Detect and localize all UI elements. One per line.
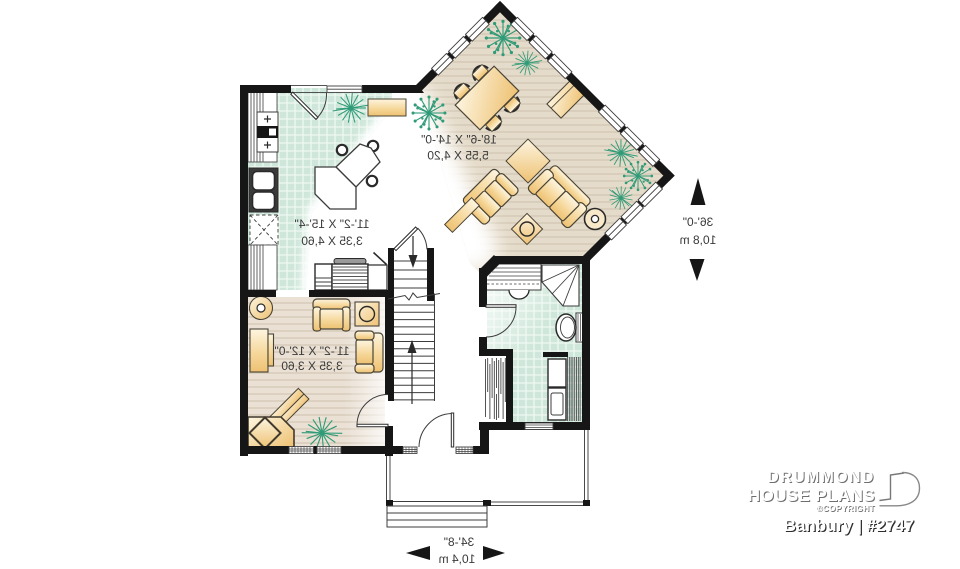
svg-text:11'-2" X 12'-0": 11'-2" X 12'-0" (275, 344, 350, 358)
svg-text:11'-2" X 15'-4": 11'-2" X 15'-4" (295, 217, 370, 231)
svg-text:18'-6" X 14'-0": 18'-6" X 14'-0" (421, 133, 497, 147)
svg-text:3,35 X 4,60: 3,35 X 4,60 (301, 234, 363, 248)
svg-text:10,4 m: 10,4 m (439, 552, 476, 566)
svg-text:34'-8": 34'-8" (444, 535, 475, 549)
svg-text:10,8 m: 10,8 m (680, 233, 717, 247)
svg-text:36'-0": 36'-0" (683, 215, 714, 229)
svg-text:3,35 X 3,60: 3,35 X 3,60 (281, 359, 343, 373)
svg-text:5,55 X 4,20: 5,55 X 4,20 (427, 149, 489, 163)
